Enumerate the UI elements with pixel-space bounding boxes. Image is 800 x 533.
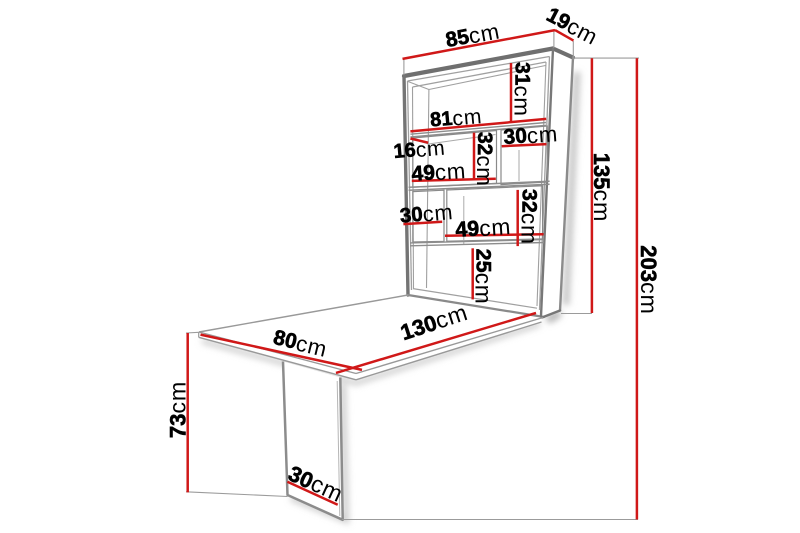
svg-text:73cm: 73cm [164,381,190,438]
svg-text:49cm: 49cm [454,213,512,243]
svg-text:19cm: 19cm [542,2,602,49]
svg-text:30cm: 30cm [503,121,559,150]
svg-text:31cm: 31cm [510,62,535,117]
svg-text:81cm: 81cm [429,105,483,132]
svg-text:85cm: 85cm [444,18,502,53]
svg-text:32cm: 32cm [516,189,542,245]
svg-text:25cm: 25cm [471,249,497,305]
svg-text:49cm: 49cm [411,158,467,187]
svg-text:203cm: 203cm [636,245,662,314]
svg-text:30cm: 30cm [399,199,454,229]
svg-text:32cm: 32cm [472,132,497,187]
svg-text:135cm: 135cm [589,153,615,222]
